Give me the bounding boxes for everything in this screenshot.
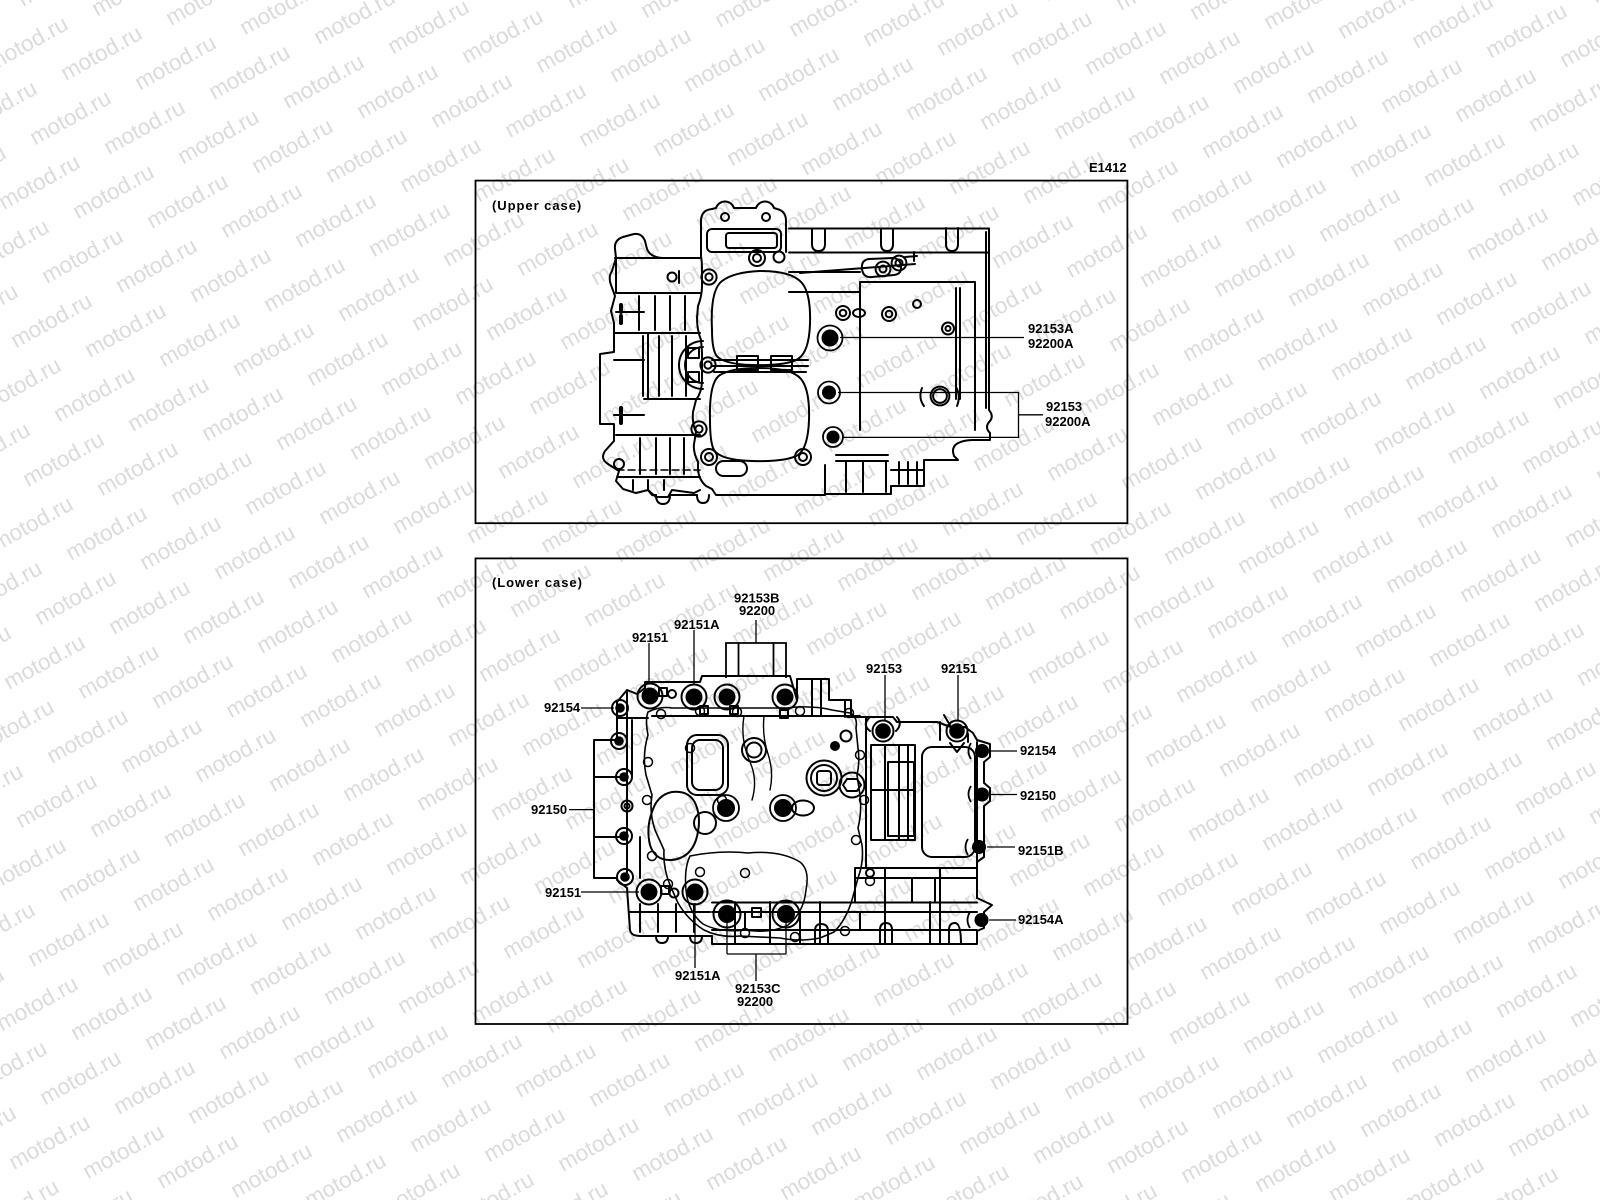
svg-text:motod.ru: motod.ru (1472, 1161, 1562, 1200)
svg-text:motod.ru: motod.ru (488, 0, 578, 4)
svg-text:92154: 92154 (1020, 743, 1057, 758)
svg-text:92151B: 92151B (1018, 843, 1064, 858)
svg-text:motod.ru: motod.ru (997, 1168, 1087, 1200)
svg-text:motod.ru: motod.ru (1586, 0, 1600, 8)
svg-text:motod.ru: motod.ru (448, 1166, 538, 1200)
svg-text:motod.ru: motod.ru (161, 0, 251, 30)
svg-text:92154A: 92154A (1018, 912, 1064, 927)
svg-text:motod.ru: motod.ru (1037, 0, 1127, 6)
svg-text:92151: 92151 (545, 885, 581, 900)
svg-text:motod.ru: motod.ru (374, 1157, 464, 1200)
svg-text:92153: 92153 (1046, 399, 1082, 414)
svg-text:(Upper case): (Upper case) (492, 198, 582, 213)
svg-text:92200: 92200 (739, 603, 775, 618)
svg-text:92151: 92151 (632, 630, 668, 645)
svg-text:motod.ru: motod.ru (849, 1149, 939, 1200)
svg-text:92151A: 92151A (674, 617, 720, 632)
svg-text:92153: 92153 (866, 661, 902, 676)
svg-text:92200A: 92200A (1045, 414, 1091, 429)
svg-text:(Lower case): (Lower case) (492, 575, 583, 590)
svg-text:motod.ru: motod.ru (300, 1147, 390, 1200)
svg-text:92150: 92150 (1020, 788, 1056, 803)
svg-text:92200: 92200 (737, 994, 773, 1009)
svg-text:92200A: 92200A (1028, 336, 1074, 351)
svg-text:motod.ru: motod.ru (1398, 1151, 1488, 1200)
svg-text:E1412: E1412 (1089, 160, 1127, 175)
svg-text:motod.ru: motod.ru (1259, 0, 1349, 34)
svg-text:motod.ru: motod.ru (923, 1159, 1013, 1200)
svg-text:motod.ru: motod.ru (235, 0, 325, 40)
svg-text:motod.ru: motod.ru (710, 0, 800, 32)
svg-text:92154: 92154 (544, 700, 581, 715)
svg-text:92150: 92150 (531, 802, 567, 817)
svg-text:92151: 92151 (941, 661, 977, 676)
svg-text:92153A: 92153A (1028, 321, 1074, 336)
svg-text:motod.ru: motod.ru (0, 1174, 63, 1200)
svg-text:92151A: 92151A (675, 968, 721, 983)
